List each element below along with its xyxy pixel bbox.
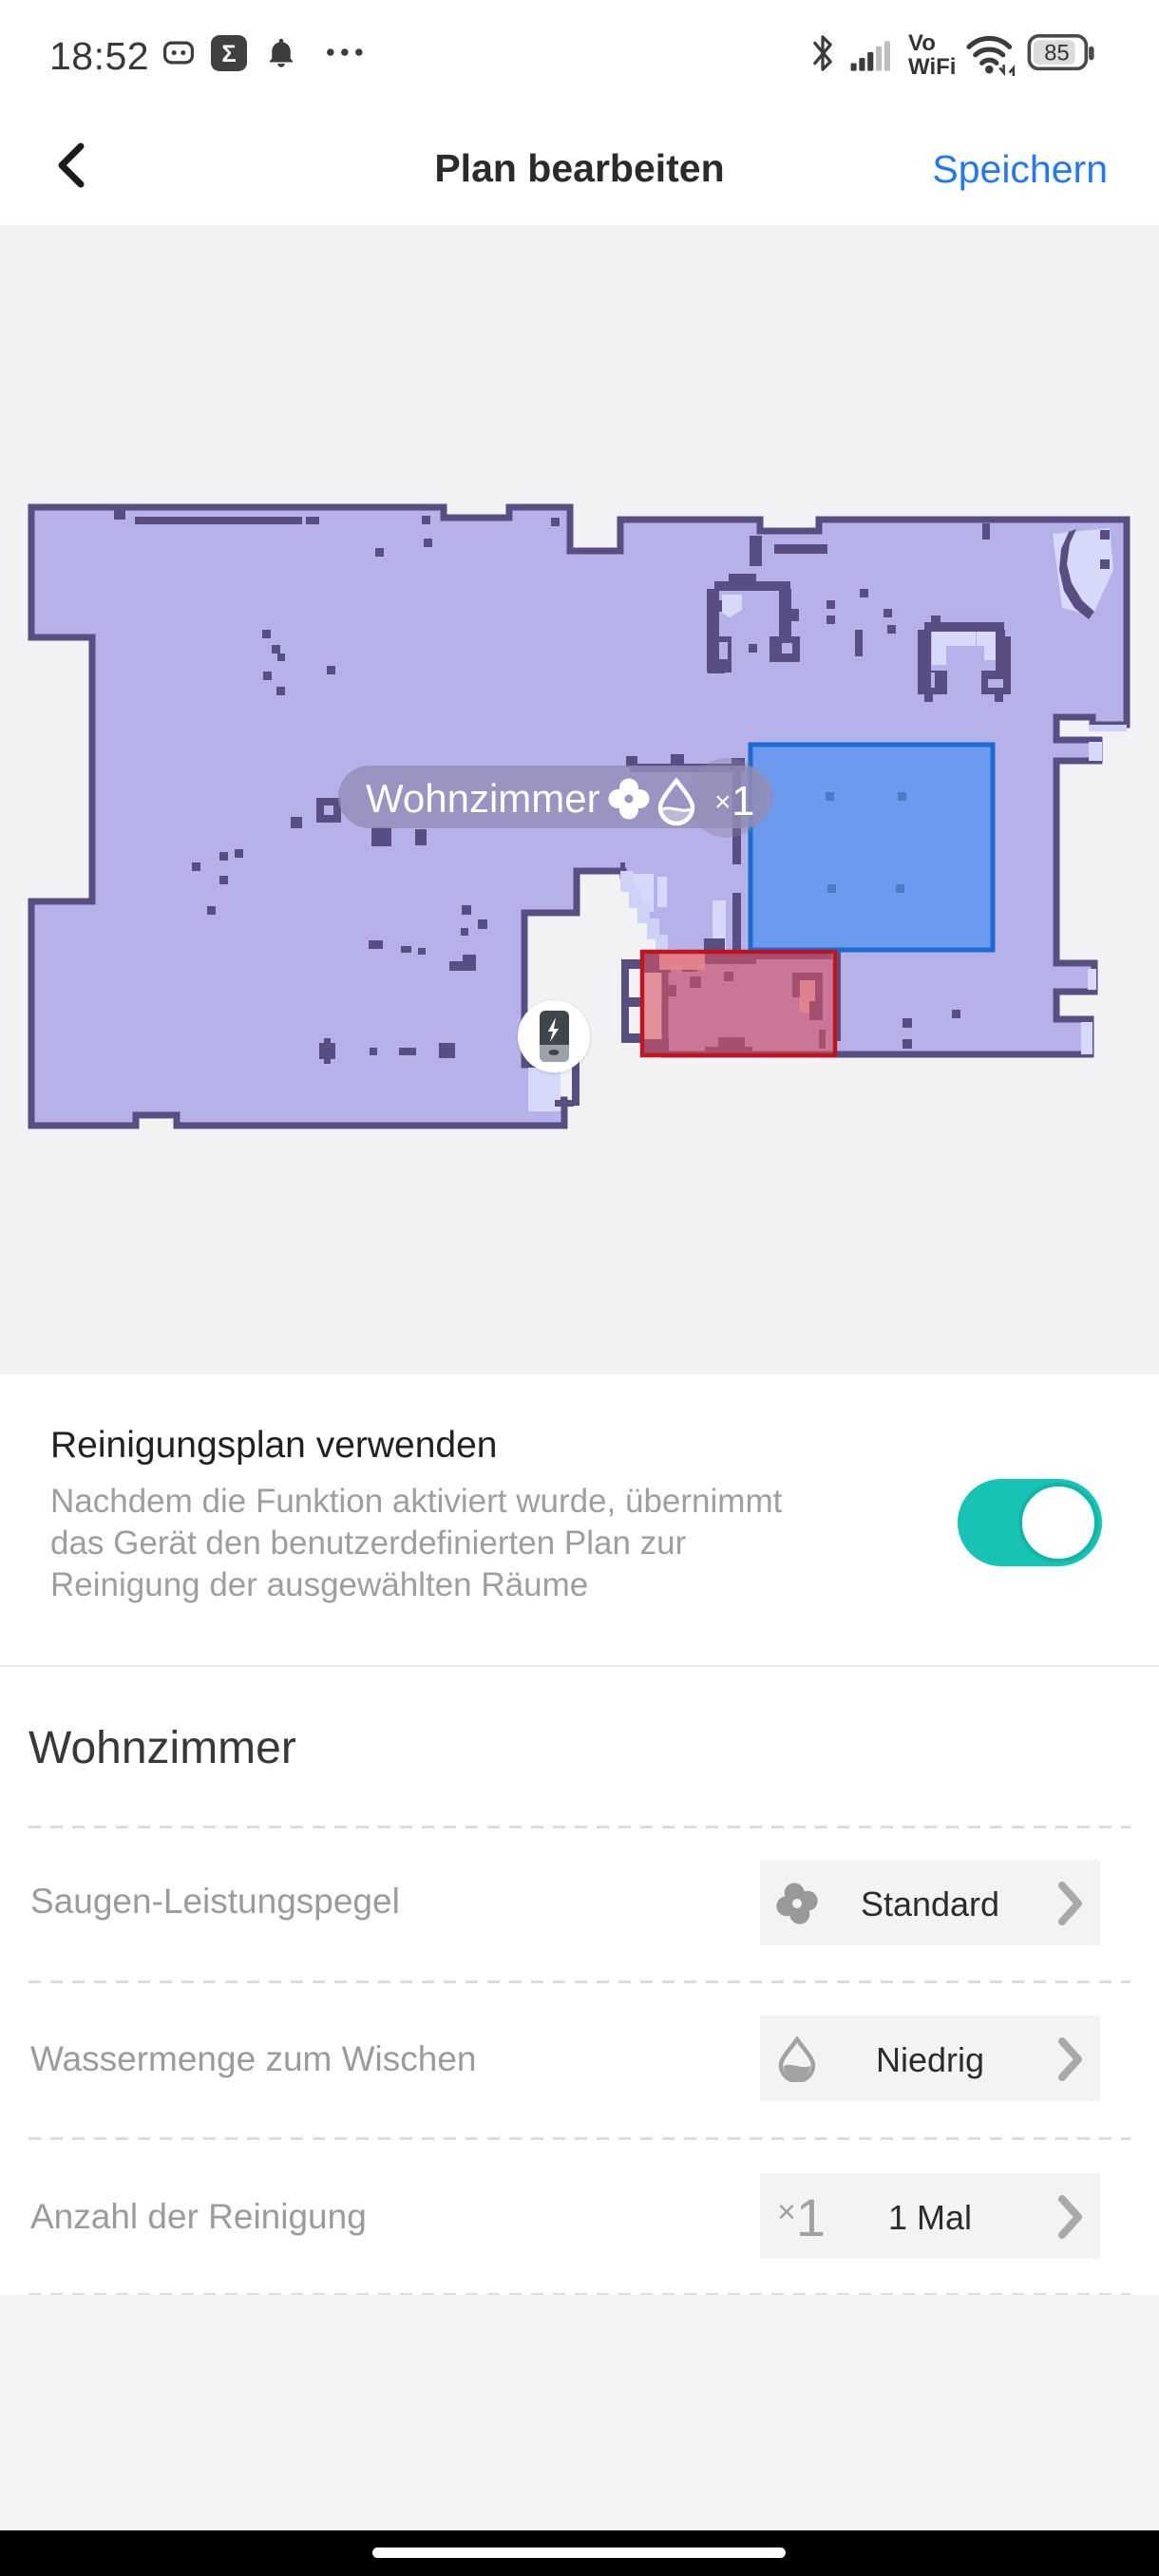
svg-text:1: 1 bbox=[731, 778, 754, 824]
svg-text:Wohnzimmer: Wohnzimmer bbox=[366, 776, 600, 821]
svg-text:85: 85 bbox=[1044, 41, 1069, 66]
svg-text:Σ: Σ bbox=[221, 41, 236, 67]
svg-text:×: × bbox=[714, 786, 731, 818]
